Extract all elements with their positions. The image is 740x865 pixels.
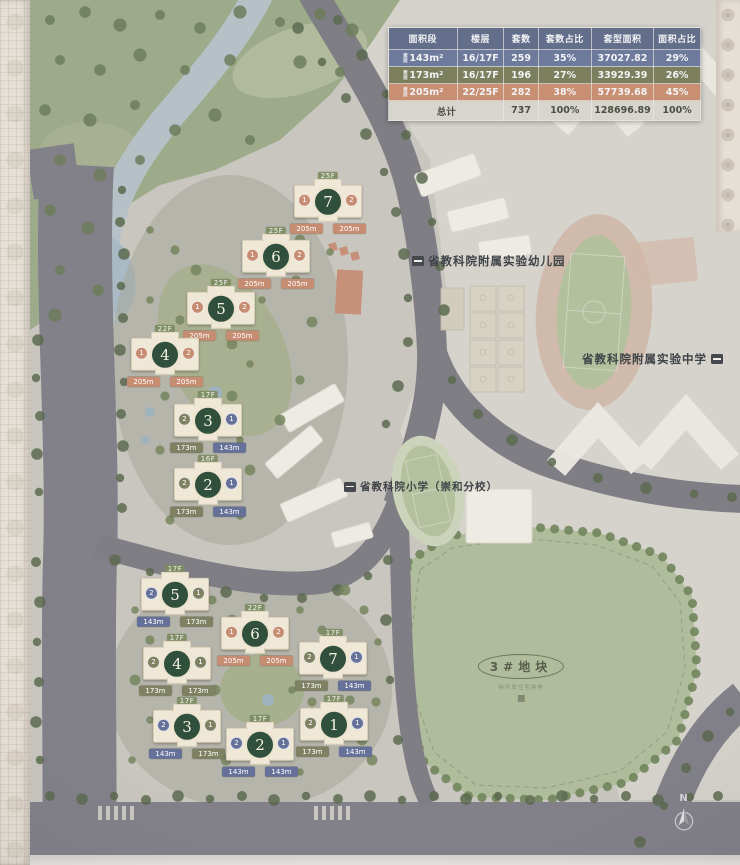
cell-area: 建面173m² bbox=[389, 67, 458, 84]
building-number: 1 bbox=[319, 710, 349, 740]
area-tag: 143m bbox=[213, 443, 246, 453]
unit-badge: 2 bbox=[178, 413, 191, 426]
buildings-layer: 25F172205m205m25F162205m205m25F152205m20… bbox=[0, 0, 740, 865]
area-tags: 143m143m bbox=[222, 767, 298, 777]
building-number: 2 bbox=[245, 730, 275, 760]
building-number: 4 bbox=[162, 649, 192, 679]
building-lower-7: 17F271173m143m bbox=[294, 629, 372, 691]
table-total-row: 总计737100%128696.89100% bbox=[389, 101, 701, 121]
area-tag: 143m bbox=[265, 767, 298, 777]
building-number: 7 bbox=[318, 644, 348, 674]
unit-badge: 1 bbox=[350, 651, 363, 664]
compass-n-label: N bbox=[668, 793, 700, 804]
building-number: 5 bbox=[160, 580, 190, 610]
unit-badge: 2 bbox=[147, 656, 160, 669]
table-header-5: 面积占比 bbox=[654, 28, 701, 50]
area-tag: 143m bbox=[339, 747, 372, 757]
area-tag: 205m bbox=[170, 377, 203, 387]
unit-badge: 1 bbox=[351, 717, 364, 730]
unit-badge: 2 bbox=[303, 651, 316, 664]
area-tags: 173m143m bbox=[170, 507, 246, 517]
cell-gfa: 33929.39 bbox=[591, 67, 653, 84]
cell-gfa: 57739.68 bbox=[591, 84, 653, 101]
area-tags: 173m143m bbox=[295, 681, 371, 691]
cell-total-gfa: 128696.89 bbox=[591, 101, 653, 121]
area-tag: 143m bbox=[338, 681, 371, 691]
area-tag: 205m bbox=[333, 224, 366, 234]
table-header-3: 套数占比 bbox=[538, 28, 591, 50]
building-lower-6: 22F162205m205m bbox=[216, 604, 294, 666]
area-tags: 143m173m bbox=[137, 617, 213, 627]
cell-units-pct: 35% bbox=[538, 50, 591, 67]
plot3-caption: 待开发住宅用地 bbox=[478, 683, 564, 691]
kindergarten-label-text: 省教科院附属实验幼儿园 bbox=[428, 253, 566, 269]
plot3-label: 3#地块 待开发住宅用地 bbox=[478, 654, 564, 702]
unit-badge: 1 bbox=[225, 413, 238, 426]
cell-total-units-pct: 100% bbox=[538, 101, 591, 121]
cell-total-gfa-pct: 100% bbox=[654, 101, 701, 121]
north-compass: N bbox=[668, 793, 700, 838]
table-row-143m²: 建面143m²16/17F25935%37027.8229% bbox=[389, 50, 701, 67]
unit-badge: 2 bbox=[293, 249, 306, 262]
area-tag: 143m bbox=[222, 767, 255, 777]
plot3-title: 3#地块 bbox=[478, 654, 564, 679]
area-tag: 173m bbox=[180, 617, 213, 627]
cell-gfa-pct: 45% bbox=[654, 84, 701, 101]
unit-badge: 2 bbox=[157, 719, 170, 732]
building-upper-2: 16F221173m143m bbox=[169, 455, 247, 517]
unit-badge: 2 bbox=[230, 737, 243, 750]
cell-floors: 16/17F bbox=[457, 50, 504, 67]
building-number: 7 bbox=[313, 187, 343, 217]
unit-badge: 2 bbox=[178, 477, 191, 490]
area-tags: 143m173m bbox=[149, 749, 225, 759]
school-icon bbox=[344, 482, 356, 492]
unit-badge: 1 bbox=[194, 656, 207, 669]
area-tags: 205m205m bbox=[127, 377, 203, 387]
table-row-205m²: 建面205m²22/25F28238%57739.6845% bbox=[389, 84, 701, 101]
unit-badge: 1 bbox=[191, 301, 204, 314]
cell-gfa: 37027.82 bbox=[591, 50, 653, 67]
area-tags: 173m143m bbox=[296, 747, 372, 757]
area-prefix: 建面 bbox=[402, 88, 408, 98]
area-tag: 143m bbox=[137, 617, 170, 627]
photo-margin bbox=[0, 855, 740, 865]
area-tag: 173m bbox=[170, 507, 203, 517]
cell-area: 建面205m² bbox=[389, 84, 458, 101]
area-tags: 205m205m bbox=[217, 656, 293, 666]
area-tag: 205m bbox=[127, 377, 160, 387]
area-tag: 143m bbox=[149, 749, 182, 759]
area-tag: 205m bbox=[281, 279, 314, 289]
area-tag: 173m bbox=[182, 686, 215, 696]
cell-total-units: 737 bbox=[504, 101, 538, 121]
building-lower-5: 17F251143m173m bbox=[136, 565, 214, 627]
cell-floors: 16/17F bbox=[457, 67, 504, 84]
building-lower-4: 17F241173m173m bbox=[138, 634, 216, 696]
table-header-1: 楼层 bbox=[457, 28, 504, 50]
unit-badge: 1 bbox=[192, 587, 205, 600]
area-tag: 143m bbox=[213, 507, 246, 517]
school-icon bbox=[412, 256, 424, 266]
area-tag: 205m bbox=[226, 331, 259, 341]
building-number: 3 bbox=[172, 712, 202, 742]
unit-badge: 2 bbox=[182, 347, 195, 360]
plot3-logo-icon bbox=[518, 695, 525, 702]
area-tag: 173m bbox=[170, 443, 203, 453]
building-number: 4 bbox=[150, 340, 180, 370]
cell-units-pct: 38% bbox=[538, 84, 591, 101]
area-tag: 173m bbox=[139, 686, 172, 696]
building-lower-2: 17F221143m143m bbox=[221, 715, 299, 777]
label-primary-school: 省教科院小学（崇和分校） bbox=[344, 479, 498, 494]
building-lower-1: 17F211173m143m bbox=[295, 695, 373, 757]
building-number: 5 bbox=[206, 294, 236, 324]
unit-badge: 2 bbox=[145, 587, 158, 600]
cell-area: 建面143m² bbox=[389, 50, 458, 67]
unit-badge: 2 bbox=[272, 626, 285, 639]
building-number: 2 bbox=[193, 470, 223, 500]
area-tag: 173m bbox=[296, 747, 329, 757]
cell-floors: 22/25F bbox=[457, 84, 504, 101]
compass-arrow-icon bbox=[671, 804, 697, 834]
label-middle-school: 省教科院附属实验中学 bbox=[582, 351, 723, 367]
site-plan-photo: 25F172205m205m25F162205m205m25F152205m20… bbox=[0, 0, 740, 865]
frame-border-right bbox=[716, 0, 740, 232]
unit-badge: 2 bbox=[304, 717, 317, 730]
unit-badge: 1 bbox=[246, 249, 259, 262]
unit-badge: 1 bbox=[225, 626, 238, 639]
building-number: 3 bbox=[193, 406, 223, 436]
cell-units: 282 bbox=[504, 84, 538, 101]
unit-badge: 1 bbox=[225, 477, 238, 490]
building-upper-3: 17F231173m143m bbox=[169, 391, 247, 453]
unit-badge: 1 bbox=[204, 719, 217, 732]
label-kindergarten: 省教科院附属实验幼儿园 bbox=[412, 253, 566, 269]
middle-school-label-text: 省教科院附属实验中学 bbox=[582, 351, 707, 367]
building-lower-3: 17F231143m173m bbox=[148, 697, 226, 759]
area-prefix: 建面 bbox=[402, 71, 408, 81]
area-tag: 205m bbox=[217, 656, 250, 666]
table-header-2: 套数 bbox=[504, 28, 538, 50]
unit-badge: 1 bbox=[135, 347, 148, 360]
unit-mix-table: 面积段楼层套数套数占比套型面积面积占比 建面143m²16/17F25935%3… bbox=[388, 27, 701, 121]
school-icon bbox=[711, 354, 723, 364]
table-header-0: 面积段 bbox=[389, 28, 458, 50]
area-tag: 173m bbox=[295, 681, 328, 691]
unit-badge: 1 bbox=[277, 737, 290, 750]
cell-units: 196 bbox=[504, 67, 538, 84]
table-header-4: 套型面积 bbox=[591, 28, 653, 50]
cell-units-pct: 27% bbox=[538, 67, 591, 84]
table-header-row: 面积段楼层套数套数占比套型面积面积占比 bbox=[389, 28, 701, 50]
unit-badge: 2 bbox=[345, 194, 358, 207]
building-upper-7: 25F172205m205m bbox=[289, 172, 367, 234]
area-prefix: 建面 bbox=[402, 54, 408, 64]
building-upper-4: 22F142205m205m bbox=[126, 325, 204, 387]
primary-school-label-text: 省教科院小学（崇和分校） bbox=[360, 479, 498, 494]
master-plan: 25F172205m205m25F162205m205m25F152205m20… bbox=[0, 0, 740, 865]
unit-badge: 2 bbox=[238, 301, 251, 314]
building-number: 6 bbox=[240, 619, 270, 649]
cell-units: 259 bbox=[504, 50, 538, 67]
table-row-173m²: 建面173m²16/17F19627%33929.3926% bbox=[389, 67, 701, 84]
cell-total-label: 总计 bbox=[389, 101, 504, 121]
cell-gfa-pct: 29% bbox=[654, 50, 701, 67]
cell-gfa-pct: 26% bbox=[654, 67, 701, 84]
area-tags: 173m173m bbox=[139, 686, 215, 696]
area-tag: 205m bbox=[260, 656, 293, 666]
frame-border-left bbox=[0, 0, 30, 865]
unit-badge: 1 bbox=[298, 194, 311, 207]
area-tags: 173m143m bbox=[170, 443, 246, 453]
building-number: 6 bbox=[261, 242, 291, 272]
